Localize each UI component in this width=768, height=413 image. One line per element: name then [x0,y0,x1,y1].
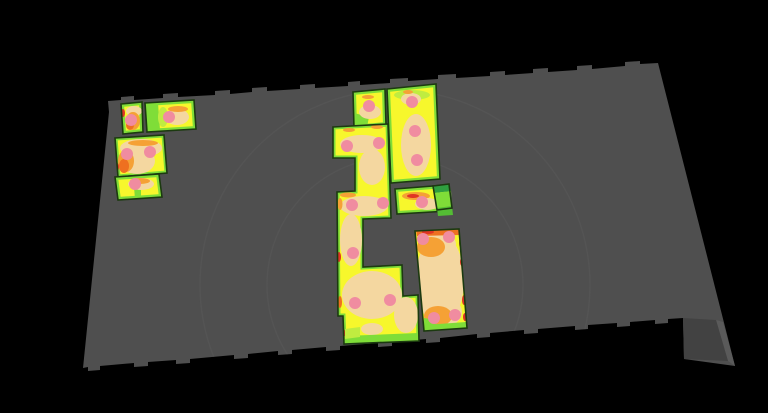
heat-blob [407,194,419,198]
luminaire-dot [443,231,455,243]
room-w-large [115,135,167,177]
luminaire-dot [428,312,440,324]
luminaire-dot [406,96,418,108]
heat-blob [338,198,343,210]
luminaire-dot [377,197,389,209]
viewport-3d[interactable] [0,0,768,413]
room-nw-small [121,102,143,134]
luminaire-dot [129,178,141,190]
luminaire-dot [346,199,358,211]
room-nw-wide [145,100,196,132]
luminaire-dot [163,111,175,123]
heat-blob [401,114,431,176]
luminaire-dot [347,247,359,259]
heat-blob [403,90,413,94]
heat-blob [394,297,418,333]
luminaire-dot [341,140,353,152]
luminaire-dot [125,114,137,126]
luminaire-dot [417,233,429,245]
luminaire-dot [373,137,385,149]
luminaire-dot [349,297,361,309]
heat-blob [340,193,356,198]
heat-blob [359,149,385,185]
luminaire-dot [384,294,396,306]
luminaire-dot [416,196,428,208]
room-w-bottom [115,174,162,200]
heat-blob [362,95,374,99]
luminaire-dot [449,309,461,321]
luminaire-dot [363,100,375,112]
luminaire-dot [409,125,421,137]
luminaire-dot [144,146,156,158]
room-mid-top-right [387,84,440,183]
scene-svg [0,0,768,413]
heat-region [345,327,360,339]
heat-blob [343,128,355,132]
heat-region [146,103,160,131]
heat-blob [361,323,383,335]
heat-blob [128,140,158,146]
heat-blob [119,159,129,173]
luminaire-dot [411,154,423,166]
room-mid-top-left [353,89,386,128]
heat-blob [168,106,188,112]
luminaire-dot [121,148,133,160]
